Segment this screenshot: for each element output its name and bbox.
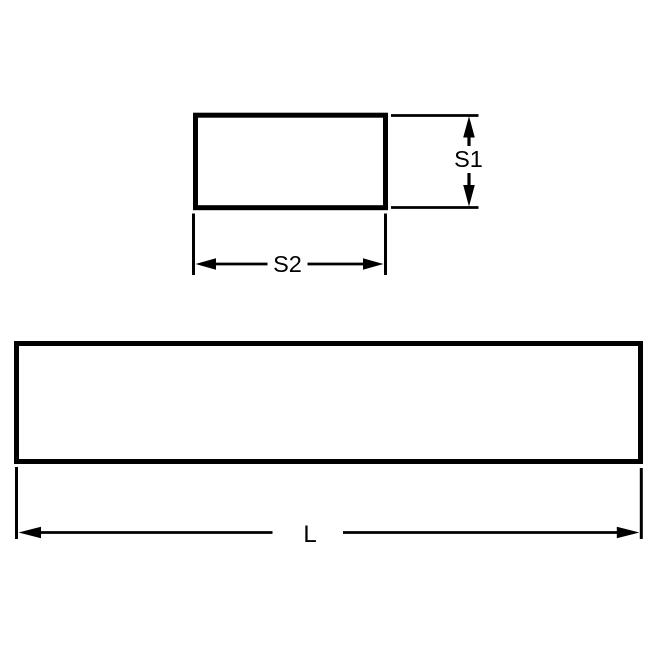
svg-text:S1: S1 <box>454 146 483 172</box>
svg-text:L: L <box>303 521 316 548</box>
svg-text:S2: S2 <box>273 251 302 277</box>
